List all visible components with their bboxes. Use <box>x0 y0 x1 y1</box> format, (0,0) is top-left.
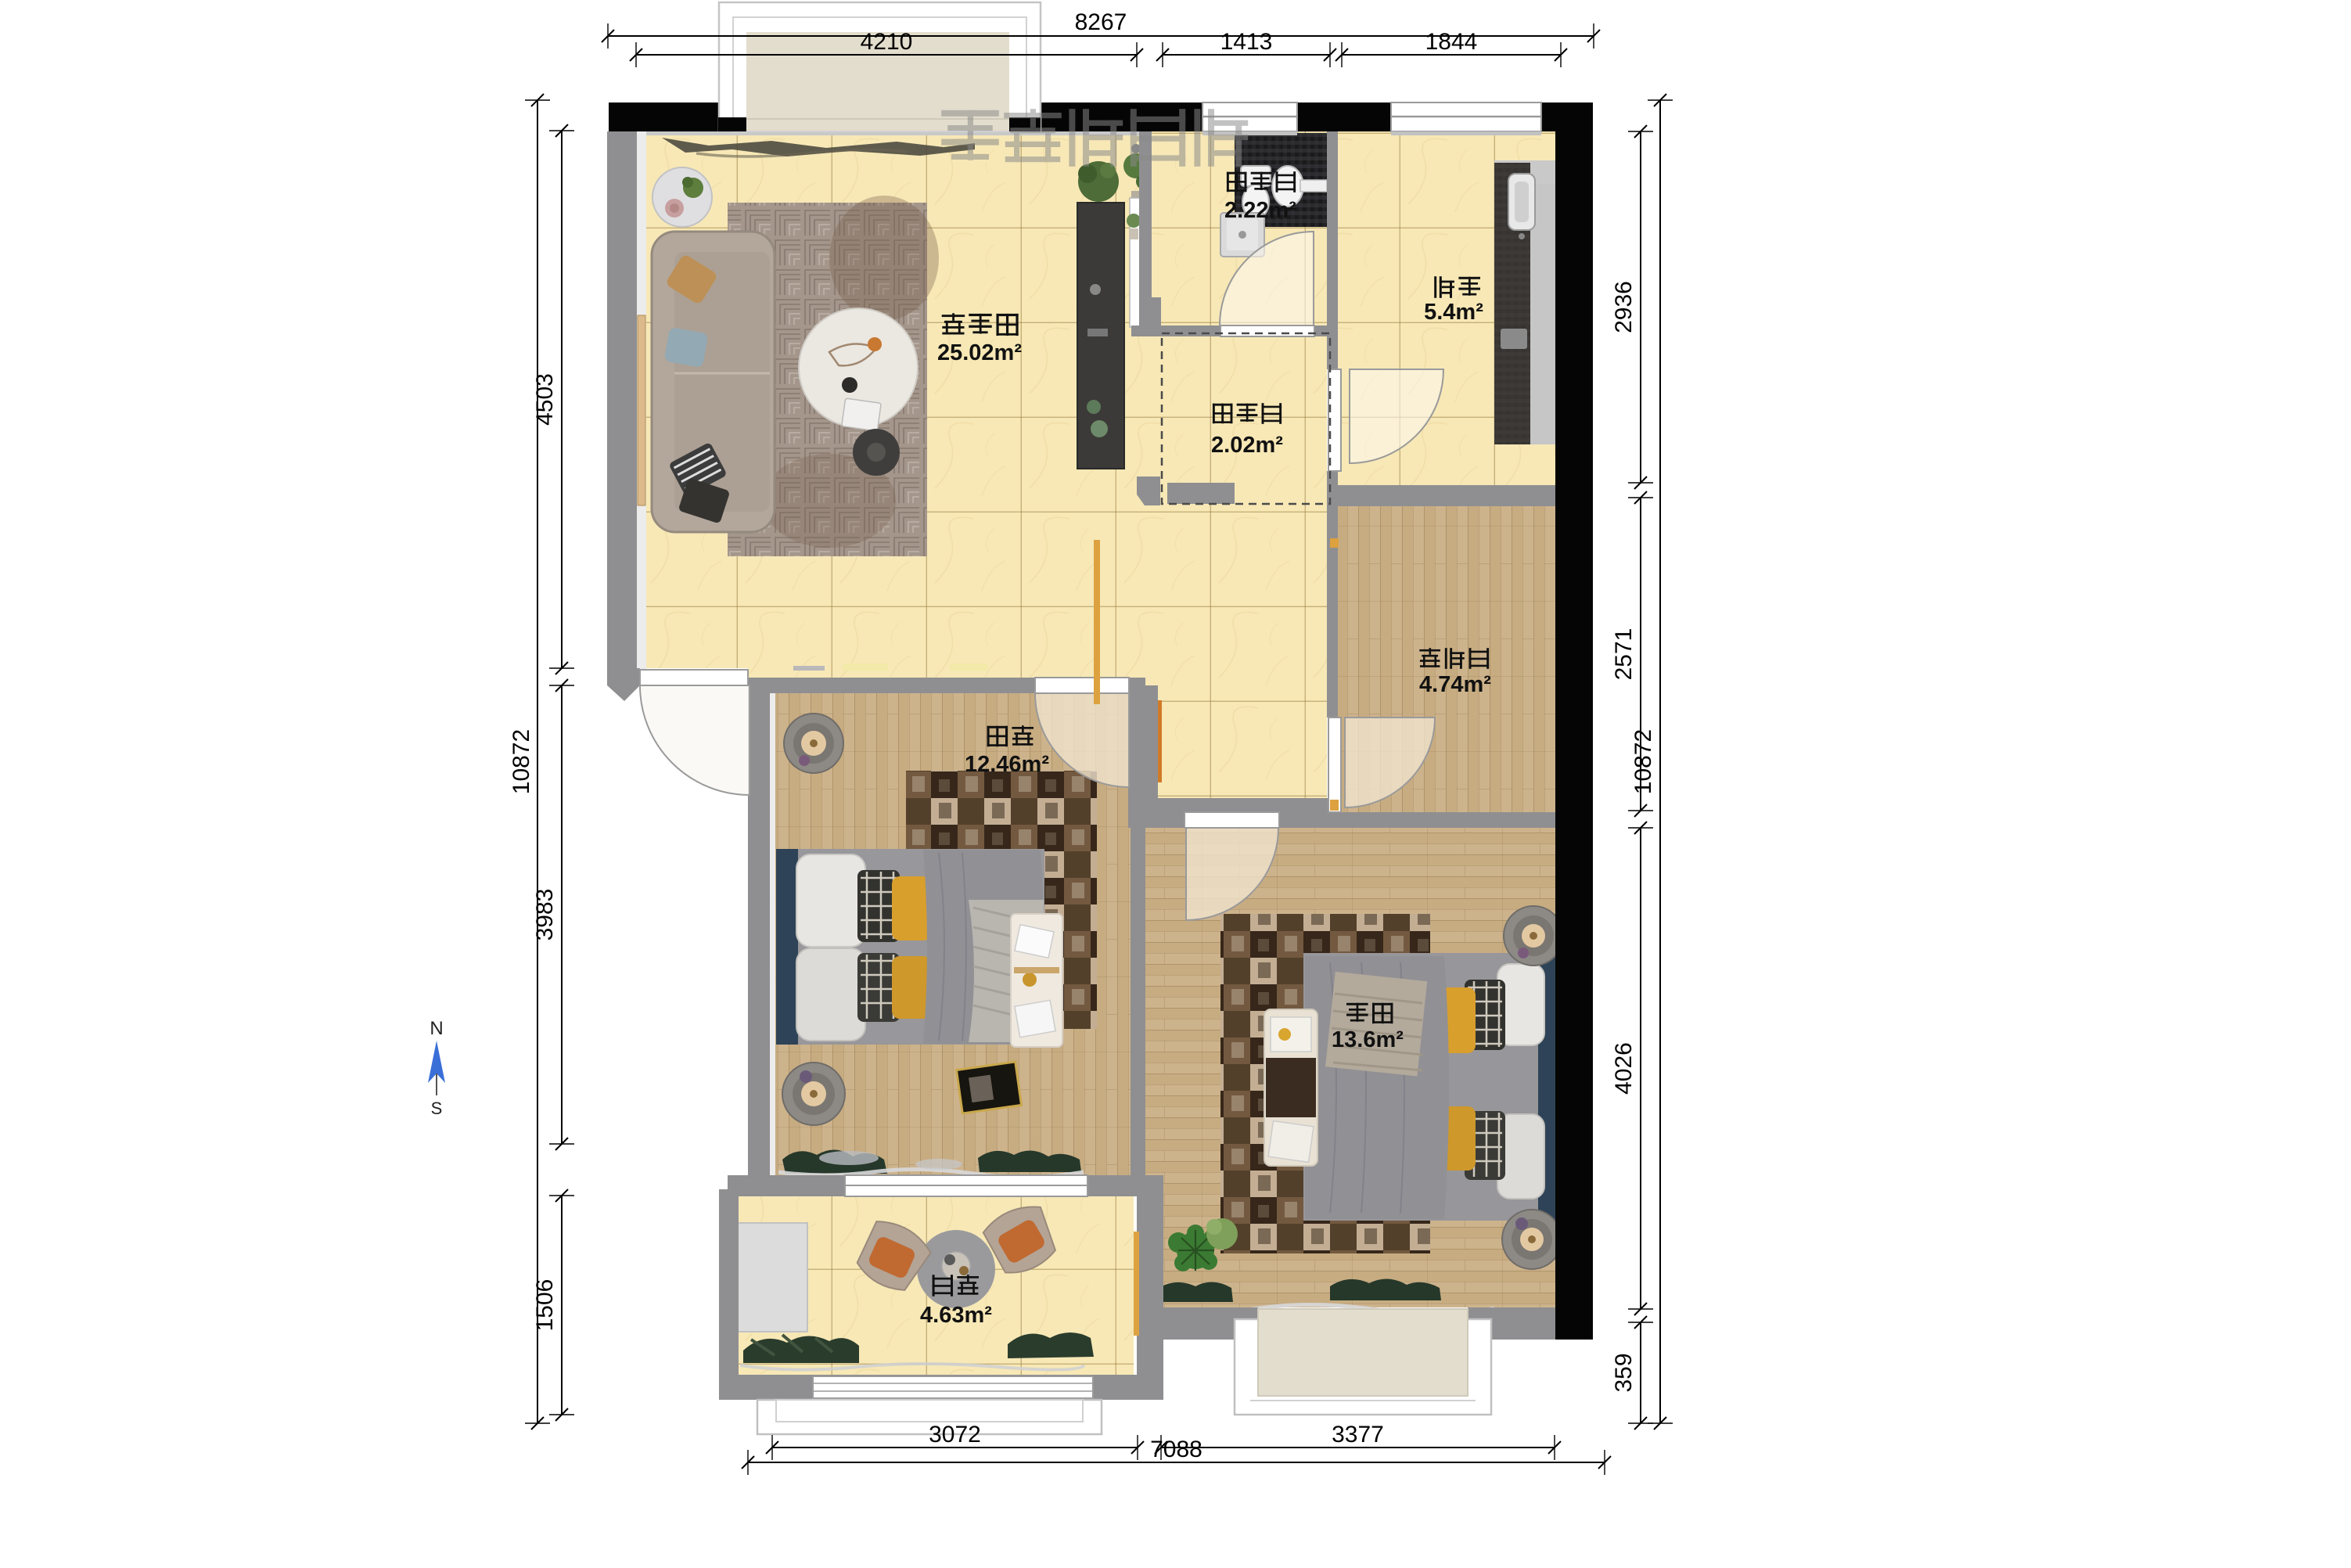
svg-text:1506: 1506 <box>532 1279 558 1332</box>
svg-text:4.63m²: 4.63m² <box>920 1303 992 1328</box>
svg-text:3983: 3983 <box>532 889 558 941</box>
svg-text:2.02m²: 2.02m² <box>1211 433 1283 458</box>
svg-text:13.6m²: 13.6m² <box>1332 1027 1404 1052</box>
svg-text:1844: 1844 <box>1425 29 1478 55</box>
svg-text:4503: 4503 <box>532 373 558 426</box>
svg-text:S: S <box>431 1099 443 1118</box>
svg-text:12.46m²: 12.46m² <box>965 752 1049 777</box>
svg-text:8267: 8267 <box>1075 9 1127 35</box>
svg-text:2571: 2571 <box>1611 628 1637 681</box>
svg-text:1413: 1413 <box>1220 29 1273 55</box>
svg-text:10872: 10872 <box>1630 729 1656 794</box>
svg-text:2.22m²: 2.22m² <box>1224 198 1296 223</box>
svg-text:3377: 3377 <box>1332 1422 1384 1448</box>
svg-text:4.74m²: 4.74m² <box>1419 672 1491 697</box>
svg-text:4210: 4210 <box>861 29 913 55</box>
svg-text:2936: 2936 <box>1611 281 1637 333</box>
svg-text:5.4m²: 5.4m² <box>1424 300 1483 325</box>
svg-text:4026: 4026 <box>1611 1042 1637 1095</box>
svg-text:359: 359 <box>1611 1353 1637 1392</box>
svg-text:3072: 3072 <box>929 1422 981 1448</box>
svg-text:7088: 7088 <box>1150 1437 1202 1462</box>
svg-text:25.02m²: 25.02m² <box>937 340 1022 365</box>
svg-text:N: N <box>430 1018 443 1039</box>
svg-text:10872: 10872 <box>509 729 534 794</box>
